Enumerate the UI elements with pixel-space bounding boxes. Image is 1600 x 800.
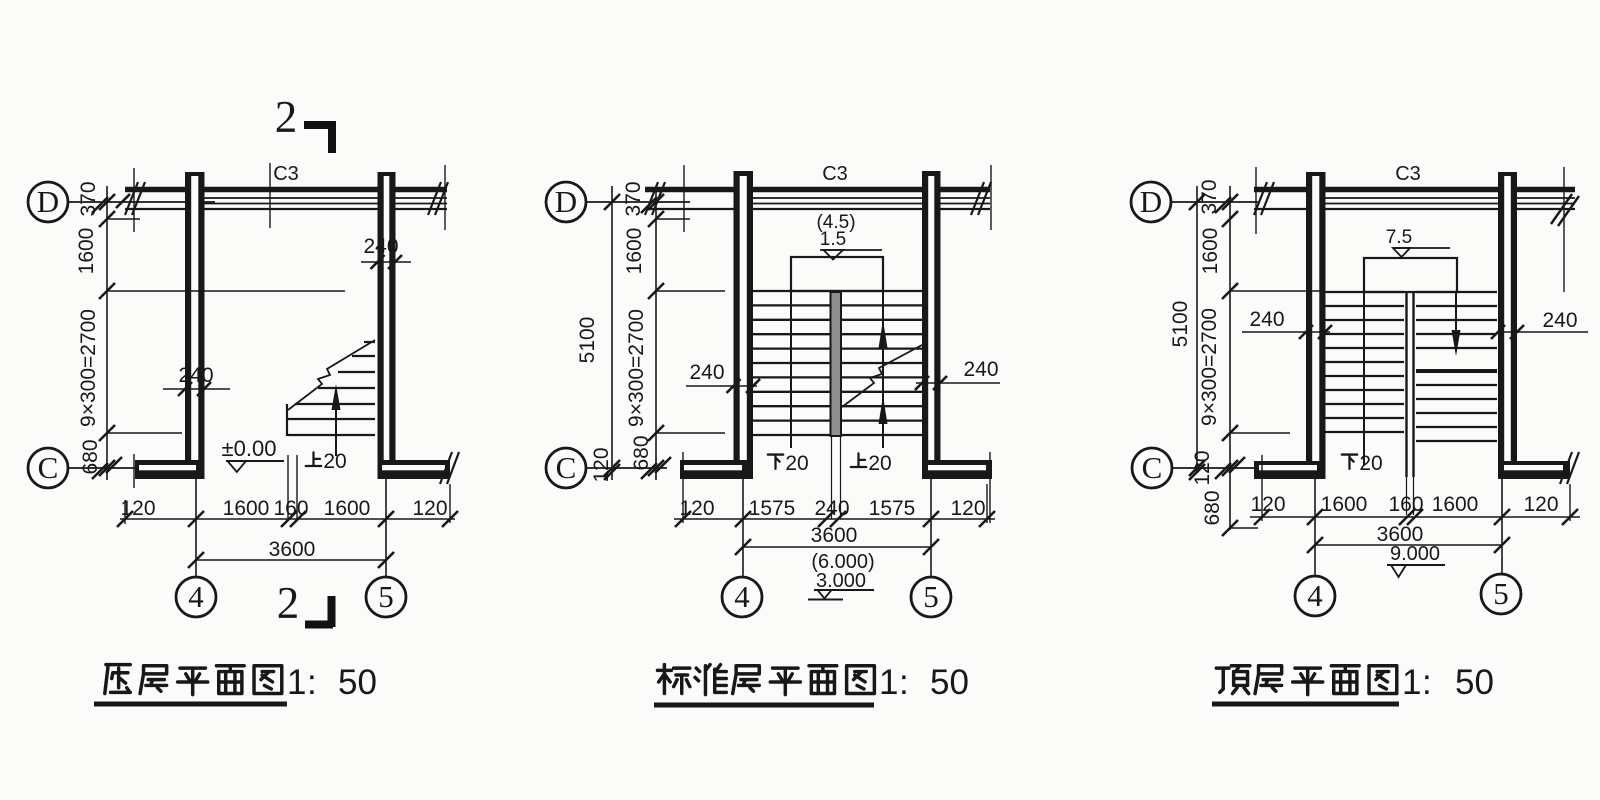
svg-text:1600: 1600 — [1199, 228, 1222, 275]
svg-text:D: D — [555, 184, 577, 219]
svg-text:±0.00: ±0.00 — [222, 436, 277, 461]
svg-text:3600: 3600 — [811, 524, 858, 547]
svg-text:240: 240 — [689, 361, 724, 384]
svg-text:C3: C3 — [822, 163, 848, 185]
svg-text:120: 120 — [590, 447, 613, 482]
svg-text:240: 240 — [1249, 308, 1284, 331]
svg-text:3600: 3600 — [269, 538, 316, 561]
svg-text::: : — [899, 663, 909, 702]
svg-text:1: 1 — [1402, 663, 1421, 702]
svg-text:160: 160 — [273, 497, 308, 520]
svg-text:680: 680 — [1201, 490, 1224, 525]
svg-text:1575: 1575 — [869, 497, 916, 520]
svg-text:20: 20 — [1359, 452, 1382, 475]
svg-text:240: 240 — [363, 235, 398, 258]
svg-text:1575: 1575 — [749, 497, 796, 520]
svg-text:9×300=2700: 9×300=2700 — [1198, 308, 1221, 426]
svg-text:1600: 1600 — [75, 228, 98, 275]
svg-text:120: 120 — [1250, 493, 1285, 516]
svg-text::: : — [1422, 663, 1432, 702]
svg-text:4: 4 — [1307, 578, 1323, 613]
svg-text:240: 240 — [1542, 309, 1577, 332]
svg-text:120: 120 — [412, 497, 447, 520]
svg-text:5100: 5100 — [1169, 301, 1192, 348]
svg-text:D: D — [1140, 184, 1162, 219]
svg-text:120: 120 — [679, 497, 714, 520]
svg-text:20: 20 — [323, 450, 346, 473]
svg-text:3.000: 3.000 — [816, 570, 866, 592]
svg-text:1600: 1600 — [1321, 493, 1368, 516]
svg-text:C3: C3 — [273, 163, 299, 185]
svg-text:50: 50 — [338, 663, 377, 702]
svg-text:9×300=2700: 9×300=2700 — [77, 309, 100, 427]
svg-text:370: 370 — [1198, 179, 1221, 214]
svg-text:20: 20 — [868, 452, 891, 475]
svg-text:4: 4 — [734, 579, 750, 614]
svg-text::: : — [307, 663, 317, 702]
svg-text:5: 5 — [923, 579, 939, 614]
svg-text:1600: 1600 — [223, 497, 270, 520]
svg-text:4: 4 — [188, 579, 204, 614]
svg-text:(4.5): (4.5) — [816, 212, 855, 233]
svg-text:120: 120 — [950, 497, 985, 520]
svg-text:9.000: 9.000 — [1390, 543, 1440, 565]
svg-text:5100: 5100 — [576, 317, 599, 364]
svg-text:1600: 1600 — [1432, 493, 1479, 516]
svg-text:2: 2 — [275, 92, 298, 142]
svg-text:C: C — [38, 450, 59, 485]
svg-text:1: 1 — [287, 663, 306, 702]
svg-text:C: C — [1142, 450, 1163, 485]
svg-text:5: 5 — [1493, 576, 1509, 611]
svg-text:20: 20 — [785, 452, 808, 475]
svg-text:120: 120 — [1523, 493, 1558, 516]
svg-text:1: 1 — [879, 663, 898, 702]
svg-text:7.5: 7.5 — [1386, 227, 1412, 248]
svg-text:C3: C3 — [1395, 163, 1421, 185]
svg-text:9×300=2700: 9×300=2700 — [625, 309, 648, 427]
svg-text:50: 50 — [1455, 663, 1494, 702]
svg-text:50: 50 — [930, 663, 969, 702]
svg-text:1600: 1600 — [324, 497, 371, 520]
svg-text:1600: 1600 — [623, 228, 646, 275]
svg-text:120: 120 — [1191, 450, 1214, 485]
svg-text:D: D — [37, 184, 59, 219]
svg-text:2: 2 — [277, 578, 300, 628]
svg-text:370: 370 — [622, 181, 645, 216]
svg-text:240: 240 — [814, 497, 849, 520]
svg-text:160: 160 — [1388, 493, 1423, 516]
svg-text:C: C — [556, 450, 577, 485]
svg-text:120: 120 — [120, 497, 155, 520]
svg-text:370: 370 — [77, 181, 100, 216]
svg-text:680: 680 — [630, 435, 653, 470]
svg-text:240: 240 — [963, 358, 998, 381]
svg-text:680: 680 — [79, 439, 102, 474]
svg-text:5: 5 — [378, 579, 394, 614]
